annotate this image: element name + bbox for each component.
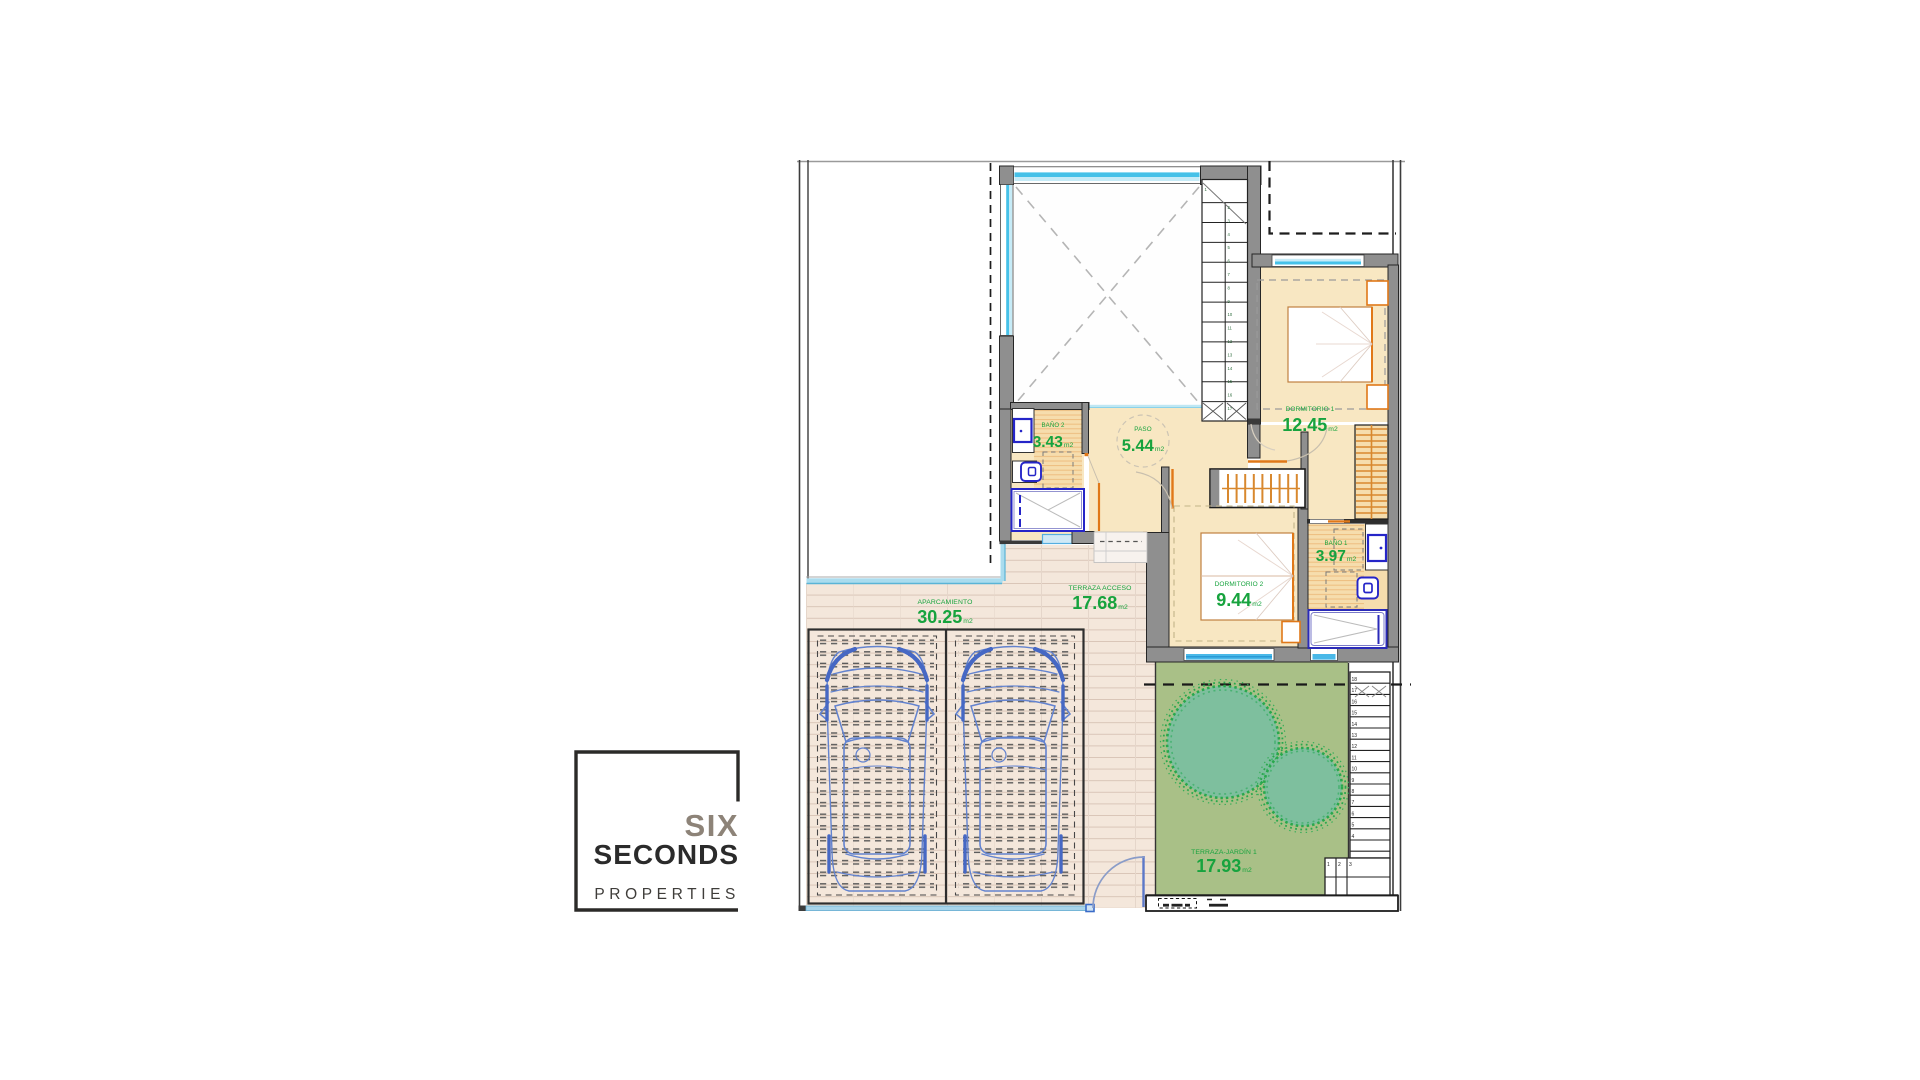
svg-text:9: 9 [1352, 778, 1355, 784]
svg-text:11: 11 [1352, 755, 1357, 761]
svg-text:14: 14 [1352, 722, 1358, 728]
svg-text:17: 17 [1352, 688, 1358, 694]
svg-text:5: 5 [1352, 823, 1355, 829]
svg-text:BAÑO 2: BAÑO 2 [1042, 422, 1065, 429]
svg-text:13: 13 [1228, 352, 1233, 357]
svg-text:DORMITORIO 1: DORMITORIO 1 [1286, 406, 1335, 413]
svg-text:PROPERTIES: PROPERTIES [594, 886, 740, 903]
svg-text:10: 10 [1228, 312, 1233, 317]
svg-text:TERRAZA-JARDÍN 1: TERRAZA-JARDÍN 1 [1191, 847, 1257, 856]
svg-text:14: 14 [1228, 366, 1233, 371]
svg-text:1: 1 [1327, 862, 1330, 868]
svg-text:16: 16 [1352, 699, 1358, 705]
svg-text:BAÑO 1: BAÑO 1 [1325, 540, 1348, 547]
svg-text:15: 15 [1228, 379, 1233, 384]
svg-text:18: 18 [1352, 677, 1358, 683]
svg-text:SIX: SIX [685, 808, 739, 843]
svg-text:15: 15 [1352, 711, 1358, 717]
svg-text:DORMITORIO 2: DORMITORIO 2 [1215, 581, 1264, 588]
svg-text:SECONDS: SECONDS [594, 839, 739, 870]
svg-text:2: 2 [1338, 862, 1341, 868]
svg-text:7: 7 [1352, 800, 1355, 806]
svg-text:11: 11 [1228, 326, 1233, 331]
svg-text:6: 6 [1352, 811, 1355, 817]
svg-text:17: 17 [1228, 406, 1233, 411]
svg-text:TERRAZA ACCESO: TERRAZA ACCESO [1069, 585, 1132, 592]
svg-text:PASO: PASO [1134, 426, 1151, 433]
svg-text:13: 13 [1352, 733, 1358, 739]
svg-text:3: 3 [1349, 862, 1352, 868]
svg-text:16: 16 [1228, 393, 1233, 398]
svg-text:8: 8 [1352, 789, 1355, 795]
svg-text:APARCAMIENTO: APARCAMIENTO [918, 599, 973, 606]
svg-text:10: 10 [1352, 767, 1358, 773]
svg-text:12: 12 [1228, 339, 1233, 344]
svg-text:12: 12 [1352, 744, 1358, 750]
svg-text:4: 4 [1352, 834, 1355, 840]
